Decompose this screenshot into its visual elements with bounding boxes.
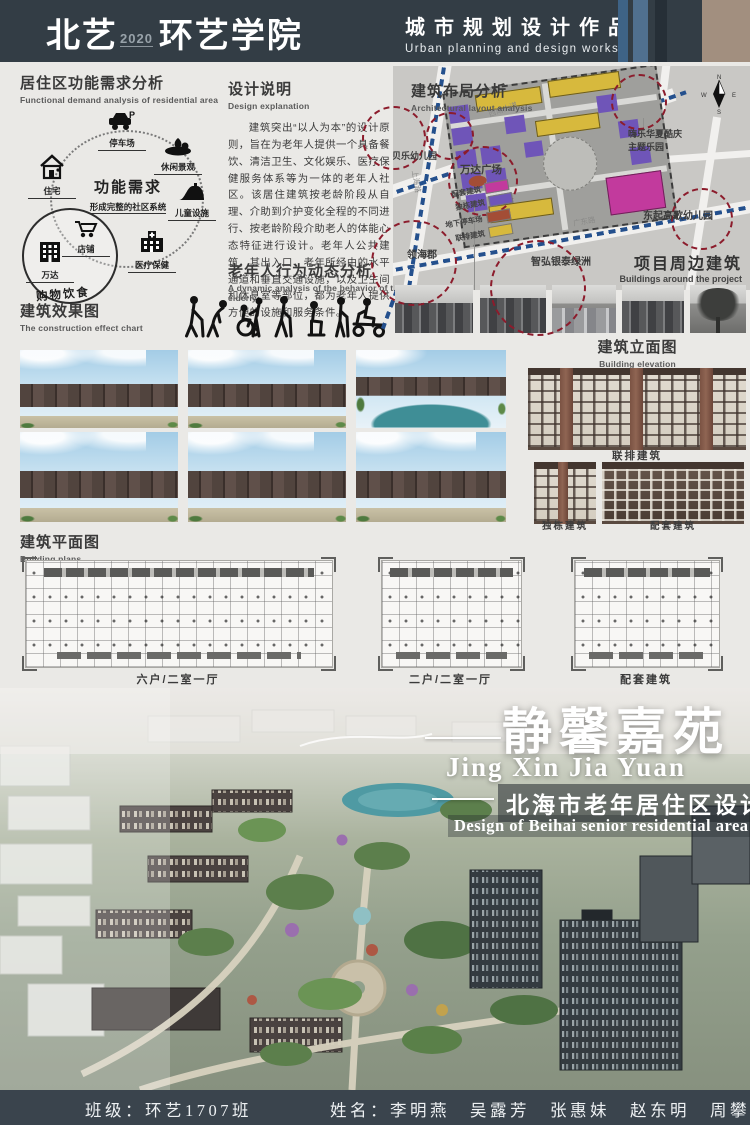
compass-icon: N W E S (699, 74, 739, 114)
surround-title-block: 项目周边建筑 Buildings around the project (619, 250, 742, 284)
surrounding-photo (622, 285, 684, 333)
floor-plan-two (381, 560, 522, 668)
map-label-dongqi: 东起高歌幼儿园 (643, 207, 713, 222)
section-effect-chart: 建筑效果图 The construction effect chart (20, 300, 143, 333)
car-icon: P (107, 110, 137, 132)
render-image-pond (356, 350, 506, 428)
plan-corner (571, 656, 586, 671)
logo-school: 环艺学院 (159, 17, 303, 55)
hero-aerial-render: 静馨嘉苑 Jing Xin Jia Yuan 北海市老年居住区设计 Design… (0, 688, 750, 1090)
layout-title-en: Architectural layout analysis (411, 103, 533, 113)
svg-text:S: S (717, 110, 721, 114)
plan-corner (708, 656, 723, 671)
map-label-wanda: 万达广场 (460, 162, 502, 177)
header-bar: 北艺2020环艺学院 城市规划设计作品 Urban planning and d… (0, 0, 750, 62)
elevation-support (602, 462, 744, 524)
header-stripe (655, 0, 667, 62)
header-title-cn: 城市规划设计作品 (405, 11, 637, 40)
floor-plan-six (25, 560, 333, 668)
footer-bar: 班级：环艺1707班 姓名：李明燕 吴露芳 张惠妹 赵东明 周攀东 (0, 1090, 750, 1125)
demand-node-parking: P 停车场 (98, 110, 146, 151)
hero-pinyin: Jing Xin Jia Yuan (446, 752, 686, 783)
compass: N W E S (699, 74, 739, 114)
demand-title-en: Functional demand analysis of residentia… (20, 95, 220, 105)
plan-corner (22, 656, 37, 671)
header-title-en: Urban planning and design works (405, 43, 637, 55)
site-block-single (524, 140, 544, 157)
design-title-en: Design explanation (228, 101, 390, 111)
layout-title-block: 建筑布局分析 Architectural layout analysis (411, 80, 533, 113)
plan-label-two: 二户/二室一厅 (381, 671, 520, 687)
poster: 北艺2020环艺学院 城市规划设计作品 Urban planning and d… (0, 0, 750, 1125)
hero-sub-line (432, 798, 494, 800)
plan-corner (22, 557, 37, 572)
slide-icon (177, 182, 207, 202)
plan-corner (321, 557, 336, 572)
elevation-pier (630, 368, 643, 450)
plan-corner (571, 557, 586, 572)
elevation-title-cn: 建筑立面图 (530, 336, 745, 357)
buildings-silhouette (395, 303, 473, 333)
logo: 北艺2020环艺学院 (46, 8, 303, 57)
footer-class: 班级：环艺1707班 (85, 1097, 252, 1121)
effect-title-en: The construction effect chart (20, 323, 143, 333)
header-stripe (618, 0, 628, 62)
plan-corner (321, 656, 336, 671)
map-label-linghai: 领海郡 (407, 246, 437, 261)
demand-center-sub: 形成完整的社区系统 (90, 201, 167, 214)
hero-title-line (425, 737, 501, 739)
demand-node-medical: 医疗保健 (128, 230, 176, 273)
elevation-pier (560, 368, 573, 450)
render-image (20, 350, 178, 428)
demand-node-wanda: 万达 (26, 240, 74, 283)
elderly-silhouettes (180, 292, 395, 338)
elevation-label-single: 独栋建筑 (534, 518, 596, 532)
analysis-circle (371, 220, 457, 306)
building-icon (36, 240, 64, 264)
plan-label-six: 六户/二室一厅 (25, 671, 331, 687)
map-label-zhihong: 智弘银泰绿洲 (531, 253, 591, 268)
floor-plan-support (574, 560, 720, 668)
landscape-icon (163, 136, 193, 156)
section-elevation: 建筑立面图 Building elevation (530, 336, 745, 369)
demand-center: 功能需求 形成完整的社区系统 (78, 176, 178, 215)
elevation-rowhouse (528, 368, 746, 450)
cart-icon (73, 220, 99, 238)
render-image (188, 432, 346, 522)
footer-names: 姓名：李明燕 吴露芳 张惠妹 赵东明 周攀东 (330, 1097, 750, 1121)
svg-text:E: E (732, 93, 736, 99)
map-label-kindergarten: 贝乐幼儿园 (393, 149, 437, 162)
buildings-silhouette (622, 301, 684, 333)
header-stripe-tan (702, 0, 750, 62)
render-image (188, 350, 346, 428)
effect-title-cn: 建筑效果图 (20, 300, 143, 321)
plan-corner (510, 656, 525, 671)
elevation-label-support: 配套建筑 (602, 518, 744, 532)
tree-trunk (716, 317, 719, 333)
hospital-icon (138, 230, 166, 254)
surrounding-photo (690, 285, 746, 333)
surround-title-cn: 项目周边建筑 (619, 250, 742, 274)
plan-label-support: 配套建筑 (574, 671, 718, 687)
demand-node-leisure: 休闲景观 (154, 136, 202, 175)
render-image (20, 432, 178, 522)
design-title-cn: 设计说明 (228, 78, 390, 99)
analysis-circle (611, 74, 667, 130)
elevation-label-rowhouse: 联排建筑 (528, 448, 746, 463)
surround-title-en: Buildings around the project (619, 274, 742, 284)
hero-subtitle-en: Design of Beihai senior residential area (448, 815, 750, 837)
svg-text:W: W (701, 93, 707, 99)
logo-brand: 北艺 (46, 17, 118, 55)
plan-corner (708, 557, 723, 572)
logo-year: 2020 (120, 31, 153, 47)
render-image (356, 432, 506, 522)
demand-node-children: 儿童设施 (168, 182, 216, 221)
plan-corner (378, 557, 393, 572)
map-label-themepark: 嗨乐华夏酷庆主题乐园 (628, 127, 682, 153)
plan-corner (510, 557, 525, 572)
site-block-single (504, 115, 526, 135)
elevation-pier (700, 368, 713, 450)
house-icon (37, 154, 67, 180)
elevation-single (534, 462, 596, 524)
plans-title-cn: 建筑平面图 (20, 531, 100, 552)
header-title-block: 城市规划设计作品 Urban planning and design works (405, 11, 637, 55)
svg-text:N: N (717, 75, 721, 81)
elevation-pier (558, 462, 568, 524)
layout-title-cn: 建筑布局分析 (411, 80, 533, 101)
demand-node-house: 住宅 (28, 154, 76, 199)
section-demand-analysis: 居住区功能需求分析 Functional demand analysis of … (20, 72, 220, 300)
demand-center-title: 功能需求 (78, 176, 178, 197)
demand-title-cn: 居住区功能需求分析 (20, 72, 220, 93)
plan-corner (378, 656, 393, 671)
site-block-rowhouse (535, 112, 601, 137)
header-stripe (633, 0, 648, 62)
